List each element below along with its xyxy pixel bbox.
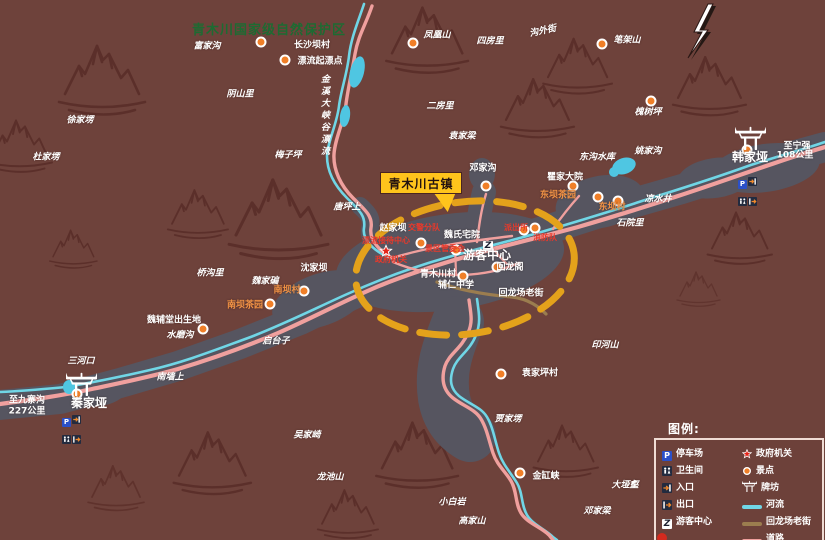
road-line-icon [742,528,762,540]
river-name-label: 金溪大峡谷漂流 [318,74,331,178]
legend-item-label: 停车场 [676,446,703,459]
toilet-icon [62,429,71,448]
poi-dot-icon [613,196,624,207]
poi-dot-icon [265,299,276,310]
poi-dot-icon [593,192,604,203]
entrance-icon [748,171,757,190]
entrance-icon [72,409,81,428]
paifang-gate-icon [735,125,766,150]
legend-row: Z游客中心 [662,512,712,529]
facility-icon-cluster: P [738,171,757,210]
reserve-title: 青木川国家级自然保护区 [192,19,346,38]
exit-icon [72,429,81,448]
poi-dot-icon [530,223,541,234]
town-callout: 青木川古镇 [380,172,462,194]
poi-dot-icon [458,271,469,282]
poi-dot-icon [519,225,530,236]
legend-partial-icon [657,533,667,540]
facility-icon-cluster: P [62,409,81,448]
legend-item-label: 河流 [766,497,784,510]
legend-item-label: 牌坊 [761,480,779,493]
poi-dot-icon [481,181,492,192]
tourist-map: 青木川国家级自然保护区 金溪大峡谷漂流 ZPP 富家沟长沙坝村漂流起漂点阴山里徐… [0,0,825,540]
poi-dot-icon [299,286,310,297]
legend-row: 政府机关 [742,444,811,461]
north-arrow-icon [680,0,722,60]
poi-dot-icon [451,245,462,256]
legend-item-label: 回龙场老街 [766,514,811,527]
legend-row: 河流 [742,495,811,512]
legend-item-label: 景点 [756,463,774,476]
government-star-icon [380,245,393,258]
poi-dot-icon [515,468,526,479]
poi-dot-icon [280,55,291,66]
legend-box: P停车场卫生间入口出口Z游客中心 政府机关景点牌坊河流回龙场老街道路 [654,438,824,540]
legend-right-column: 政府机关景点牌坊河流回龙场老街道路 [742,444,811,540]
legend-row: 道路 [742,529,811,540]
town-callout-label: 青木川古镇 [388,175,453,192]
legend-item-label: 游客中心 [676,514,712,527]
legend-row: 牌坊 [742,478,811,495]
poi-dot-icon [198,324,209,335]
poi-dot-icon [408,38,419,49]
legend-item-label: 政府机关 [756,446,792,459]
poi-dot-icon [492,262,503,273]
visitor-center-icon: Z [483,241,493,251]
legend-item-label: 入口 [676,480,694,493]
legend-title: 图例: [668,420,700,437]
visitor-center-icon: Z [662,511,672,530]
poi-dot-icon [496,369,507,380]
poi-dot-icon [416,238,427,249]
legend-item-label: 卫生间 [676,463,703,476]
legend-row: 入口 [662,478,712,495]
poi-dot-icon [646,96,657,107]
legend-row: 出口 [662,495,712,512]
paifang-gate-icon [66,371,97,396]
legend-row: 卫生间 [662,461,712,478]
parking-icon: P [62,409,71,428]
poi-dot-icon [597,39,608,50]
legend-row: 景点 [742,461,811,478]
toilet-icon [738,191,747,210]
poi-dot-icon [568,181,579,192]
legend-row: P停车场 [662,444,712,461]
exit-icon [748,191,757,210]
legend-item-label: 道路 [766,531,784,540]
legend-item-label: 出口 [676,497,694,510]
legend-left-column: P停车场卫生间入口出口Z游客中心 [662,444,712,529]
legend-row: 回龙场老街 [742,512,811,529]
poi-dot-icon [256,37,267,48]
parking-icon: P [738,171,747,190]
